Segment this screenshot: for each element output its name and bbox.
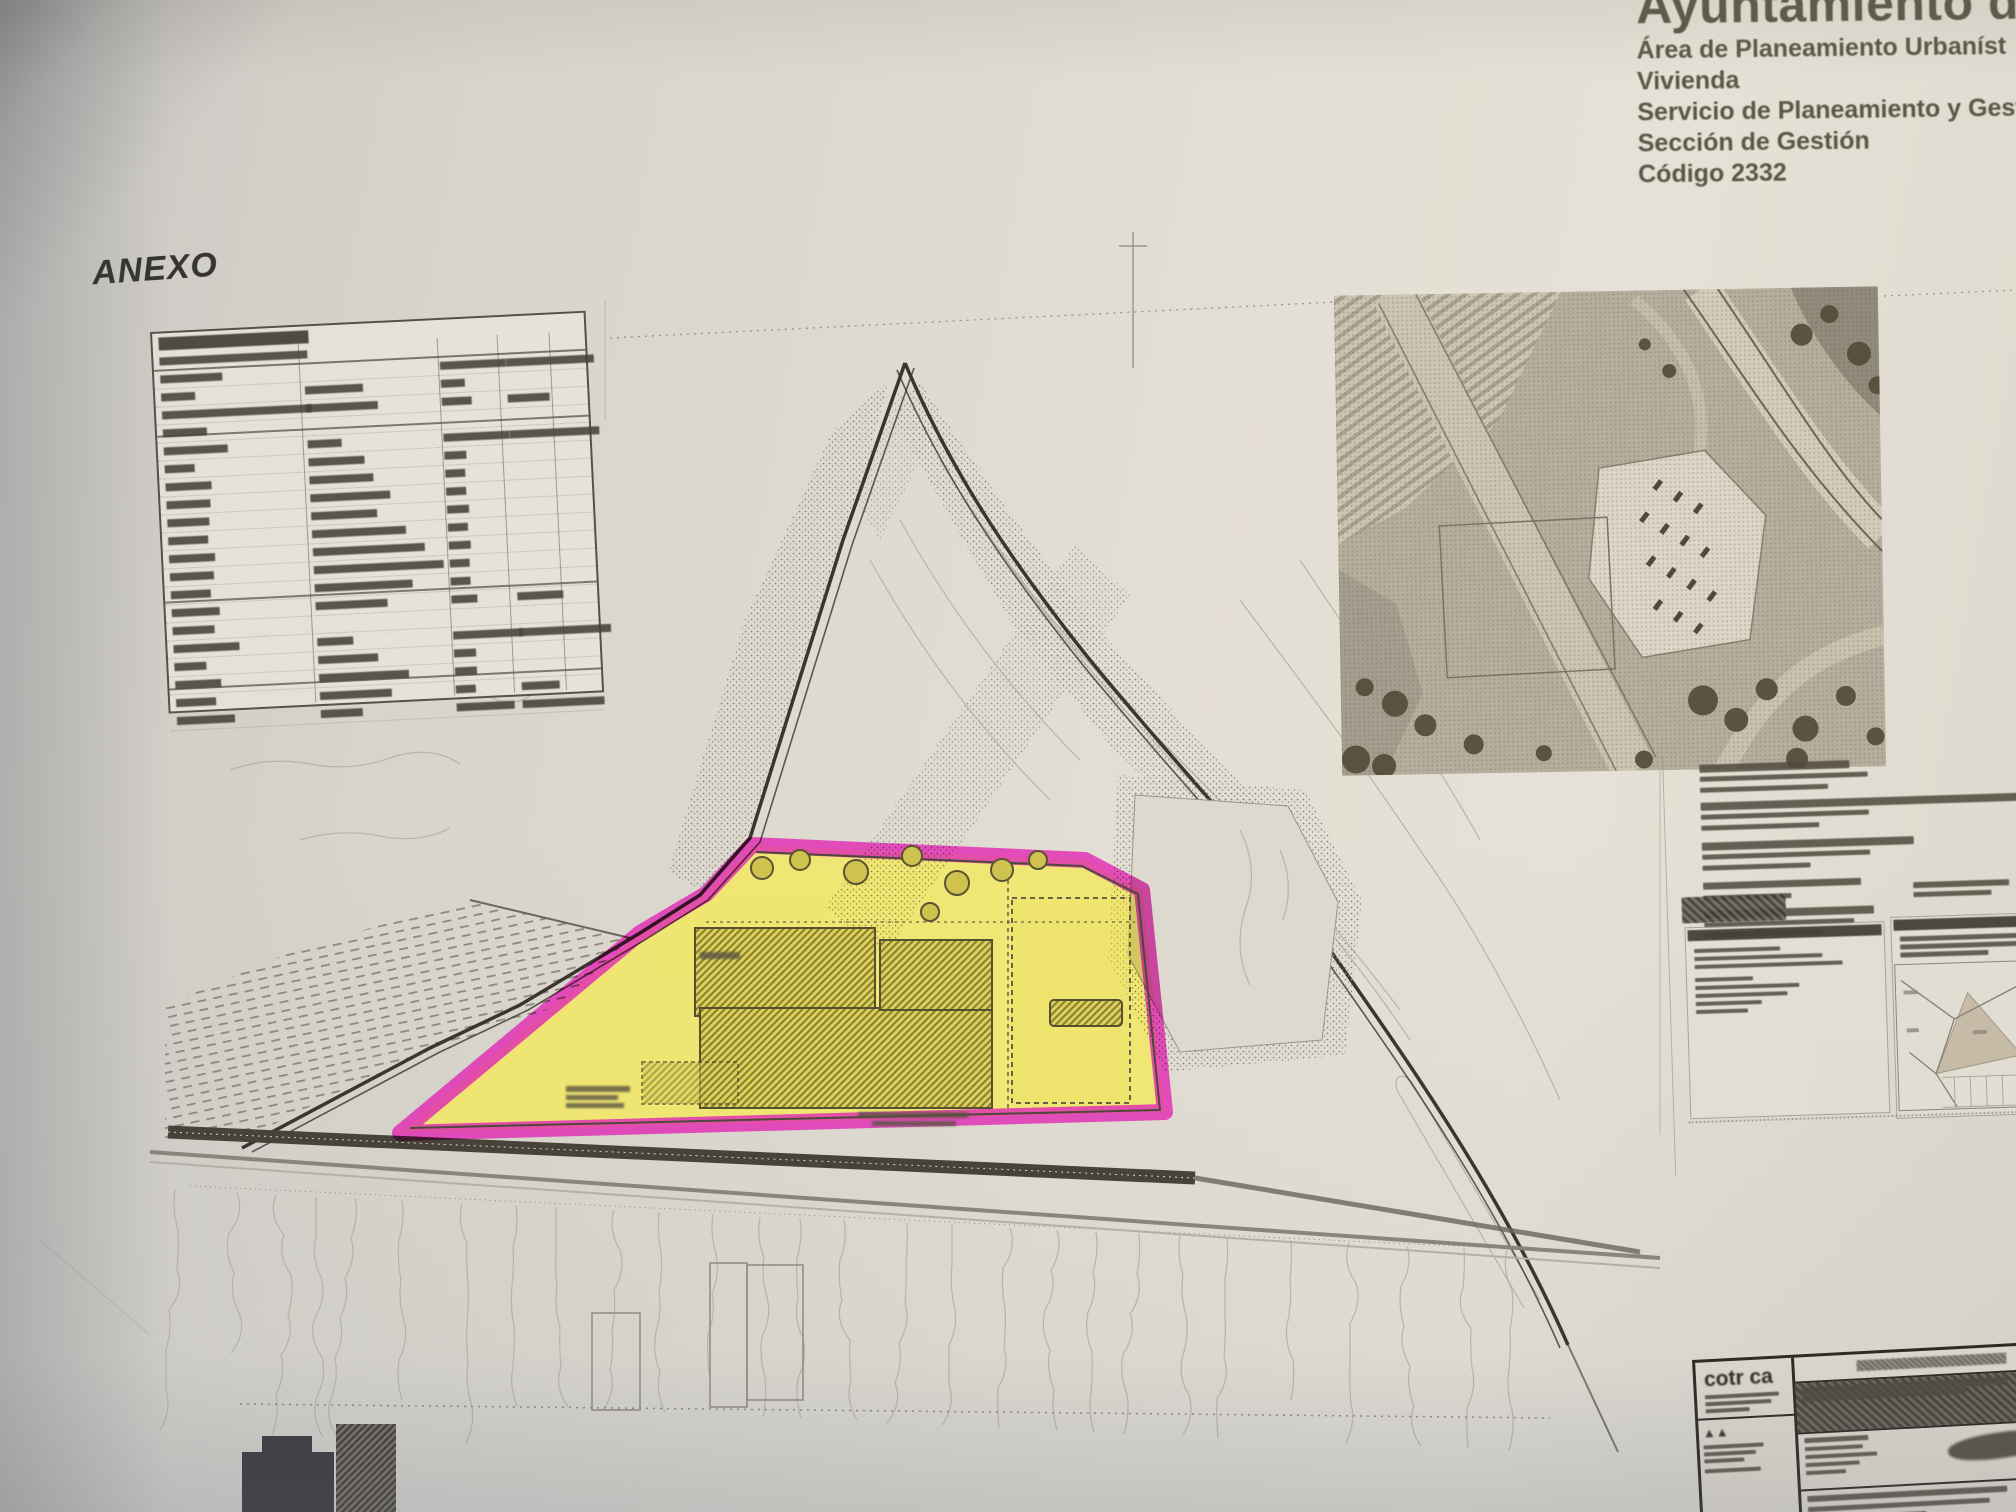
cadastre-logo — [1681, 894, 1786, 923]
illegible-text-line — [1700, 784, 1828, 793]
firm-logo: cotr ca — [1695, 1358, 1794, 1419]
surface-table-body — [153, 333, 602, 712]
illegible-text-line — [1900, 933, 2016, 942]
illegible-text-line — [1706, 1407, 1750, 1413]
illegible-text-line — [1806, 1469, 1846, 1475]
illegible-text-line — [1805, 1444, 1863, 1451]
illegible-text-line — [1702, 862, 1810, 870]
municipality-title: Ayuntamiento de — [1636, 0, 2016, 35]
illegible-text-line — [1695, 991, 1787, 998]
illegible-text-line — [1703, 1442, 1763, 1449]
header-code: Código 2332 — [1638, 153, 2016, 191]
illegible-text-line — [1900, 950, 1988, 958]
illegible-text-line — [1696, 1000, 1762, 1006]
title-block-right — [1794, 1343, 2016, 1512]
illegible-text-line — [1704, 1457, 1744, 1463]
illegible-text-line — [1704, 1450, 1756, 1457]
illegible-text-line — [1694, 953, 1822, 961]
bottom-buildings — [242, 1424, 396, 1512]
illegible-text-line — [1900, 941, 2016, 950]
illegible-text-line — [1699, 760, 1849, 773]
illegible-text-line — [1695, 976, 1753, 982]
architect-cell: ▲▲ — [1698, 1414, 1800, 1512]
header: Ayuntamiento de Área de Planeamiento Urb… — [1636, 0, 2016, 190]
cadastral-data-panel — [1684, 921, 1890, 1119]
document-photo: Ayuntamiento de Área de Planeamiento Urb… — [0, 0, 2016, 1512]
illegible-text-line — [1705, 1467, 1761, 1474]
illegible-text-line — [1694, 946, 1780, 953]
illegible-text-line — [1805, 1451, 1877, 1459]
title-block: cotr ca ▲▲ — [1692, 1340, 2016, 1512]
illegible-text-line — [1702, 850, 1870, 860]
illegible-text-line — [1806, 1460, 1860, 1467]
header-service: Servicio de Planeamiento y Gesti — [1637, 91, 2016, 129]
illegible-text-line — [1695, 983, 1799, 990]
panel-header-bar — [1893, 915, 2016, 931]
illegible-text-line — [1700, 772, 1868, 782]
illegible-text-line — [1804, 1435, 1868, 1443]
illegible-text-line — [1702, 836, 1914, 851]
illegible-text-line — [1701, 822, 1819, 831]
firm-logo-text: cotr ca — [1703, 1364, 1788, 1392]
architect-stamp-icon: ▲▲ — [1702, 1424, 1728, 1440]
mini-cadastral-map — [1893, 958, 2016, 1112]
surface-table — [150, 311, 604, 714]
illegible-text-line — [1701, 810, 1869, 820]
illegible-text-line — [1700, 793, 2016, 811]
header-section: Sección de Gestión — [1638, 122, 2016, 160]
cadastral-map-panel — [1890, 912, 2016, 1119]
stamp-text — [1913, 879, 2010, 901]
title-block-left: cotr ca ▲▲ — [1695, 1358, 1803, 1512]
header-department: Área de Planeamiento Urbaníst — [1636, 29, 2016, 67]
illegible-text-line — [1703, 878, 1861, 890]
illegible-text-line — [1913, 890, 1991, 897]
cadastral-column — [1662, 744, 2016, 1175]
illegible-text-line — [1695, 960, 1843, 969]
illegible-text-line — [1696, 1008, 1748, 1014]
illegible-text-line — [1705, 1399, 1771, 1406]
aerial-photo — [1334, 286, 1893, 779]
header-vivienda: Vivienda — [1637, 60, 2016, 98]
